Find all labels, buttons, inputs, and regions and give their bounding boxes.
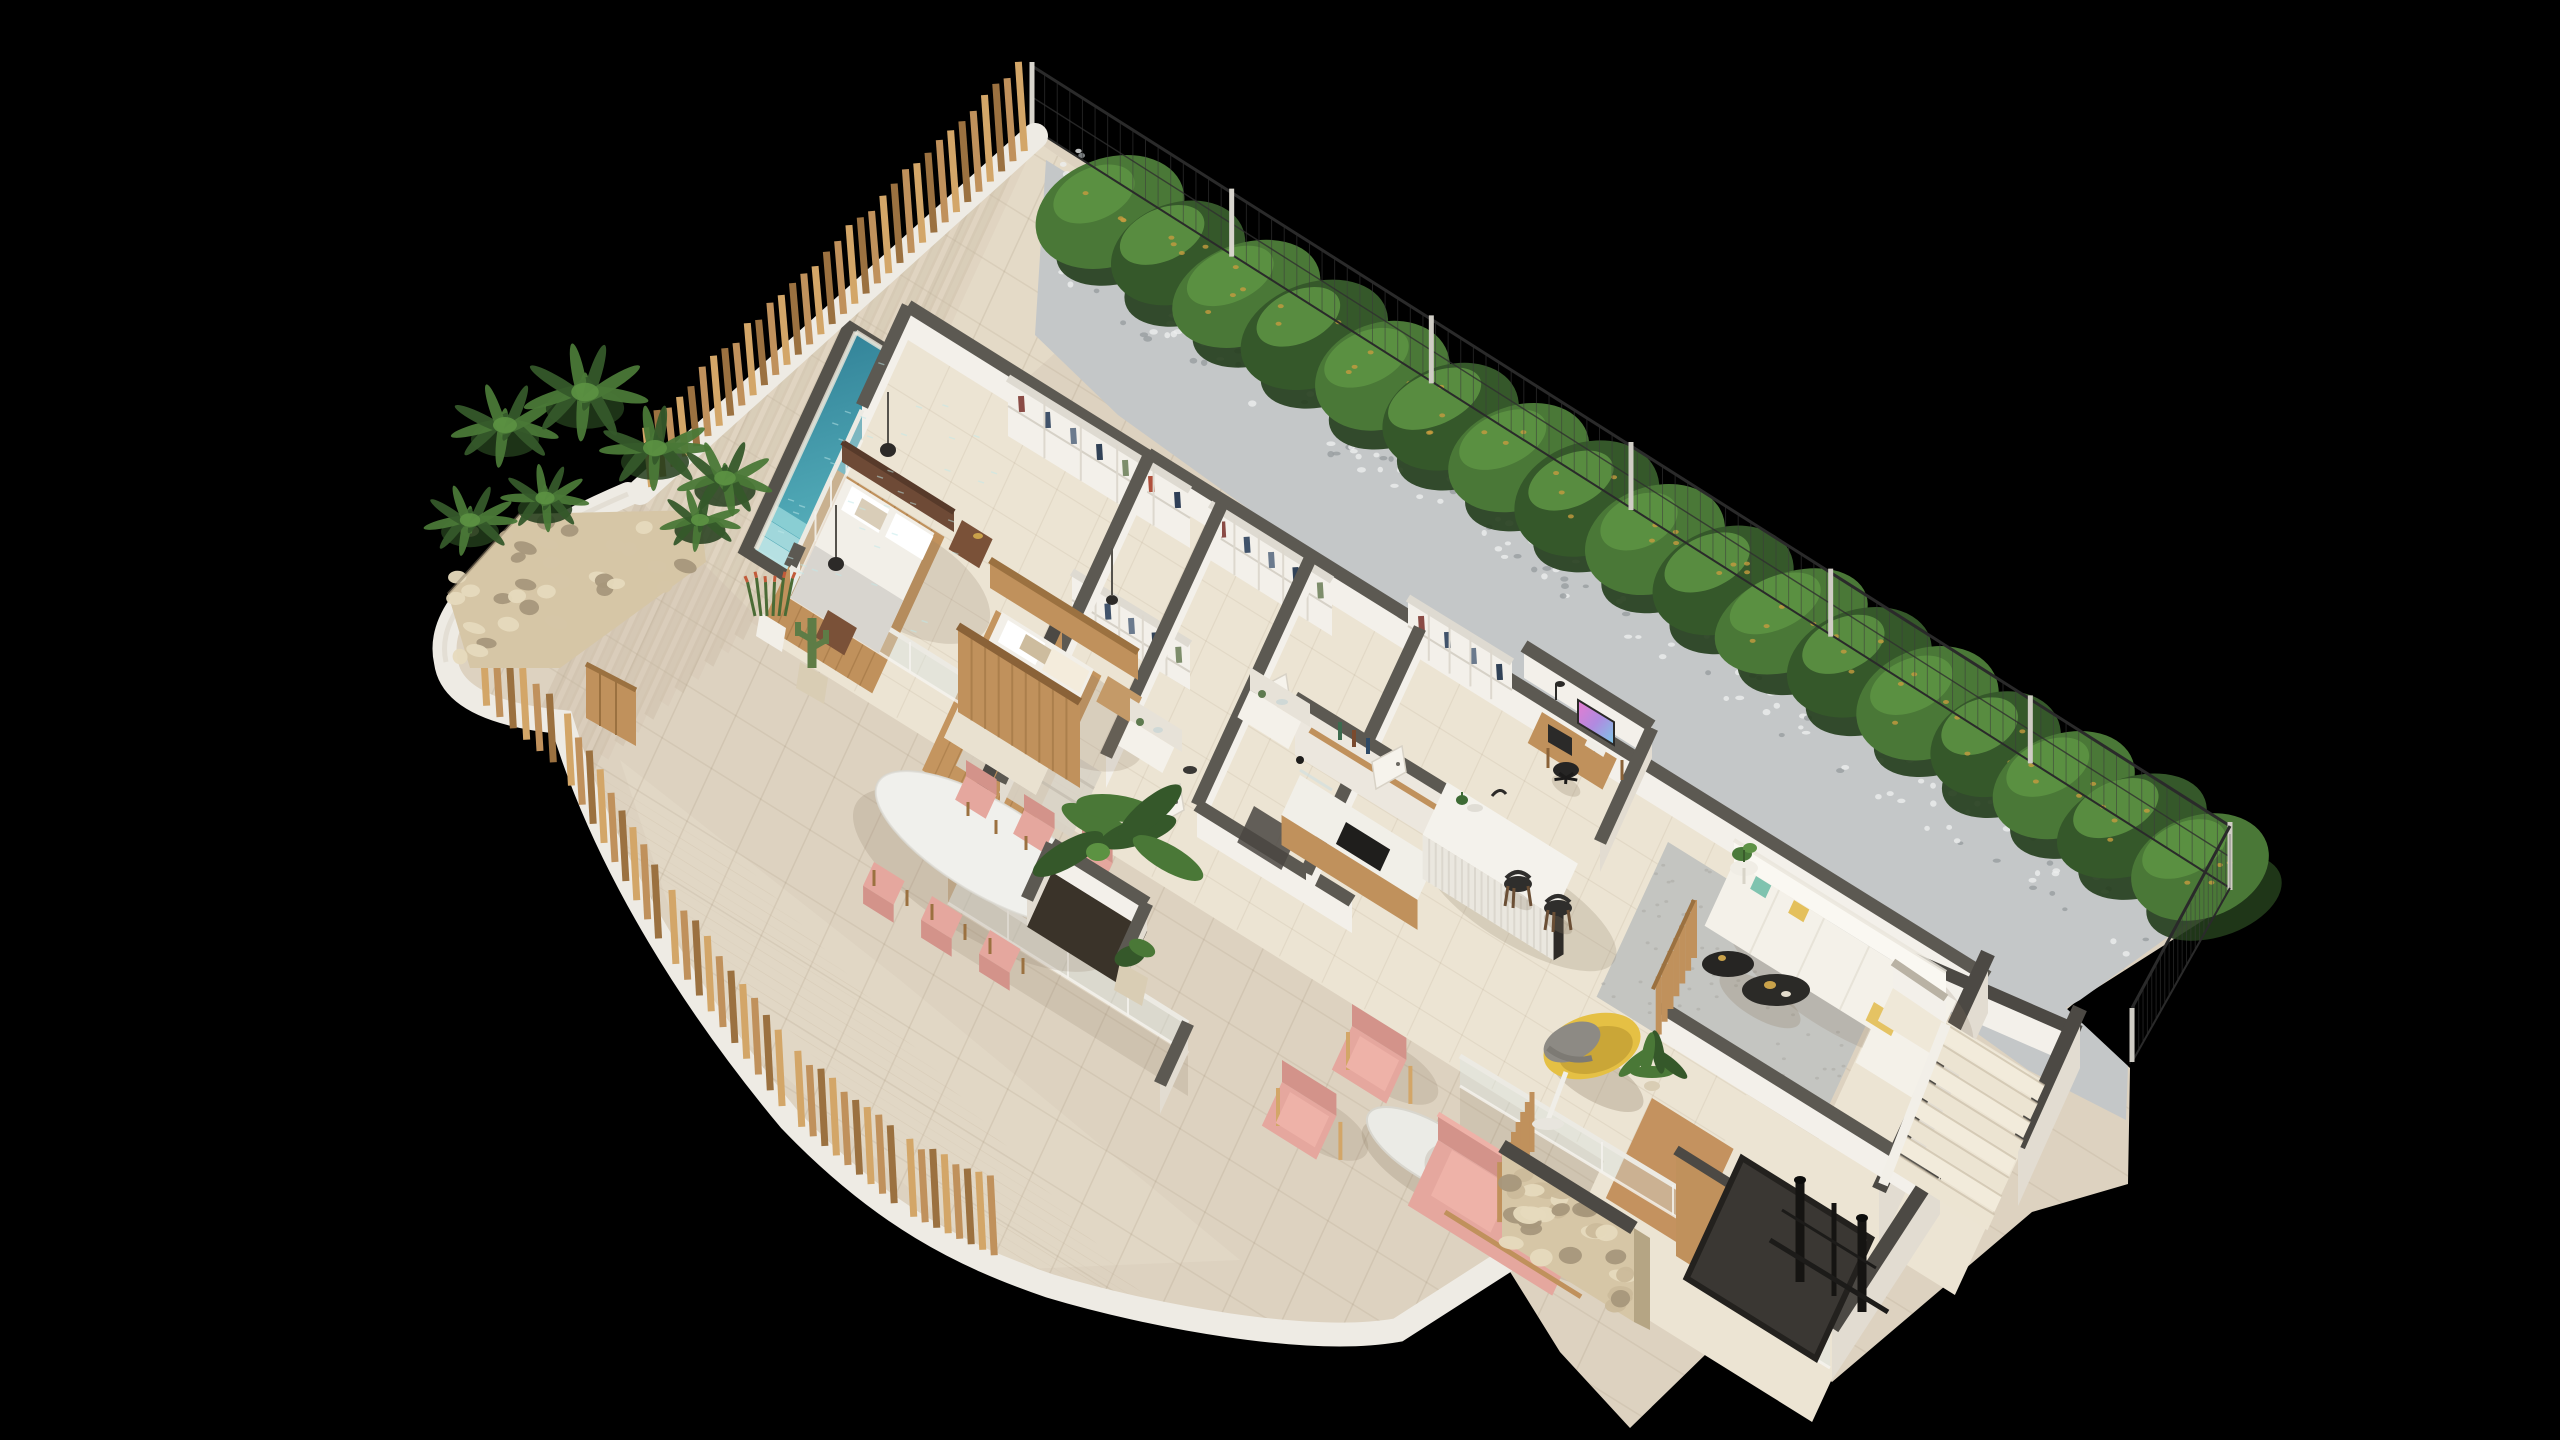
villa-floorplan-3d-render <box>0 0 2560 1440</box>
scene-canvas <box>0 0 2560 1440</box>
